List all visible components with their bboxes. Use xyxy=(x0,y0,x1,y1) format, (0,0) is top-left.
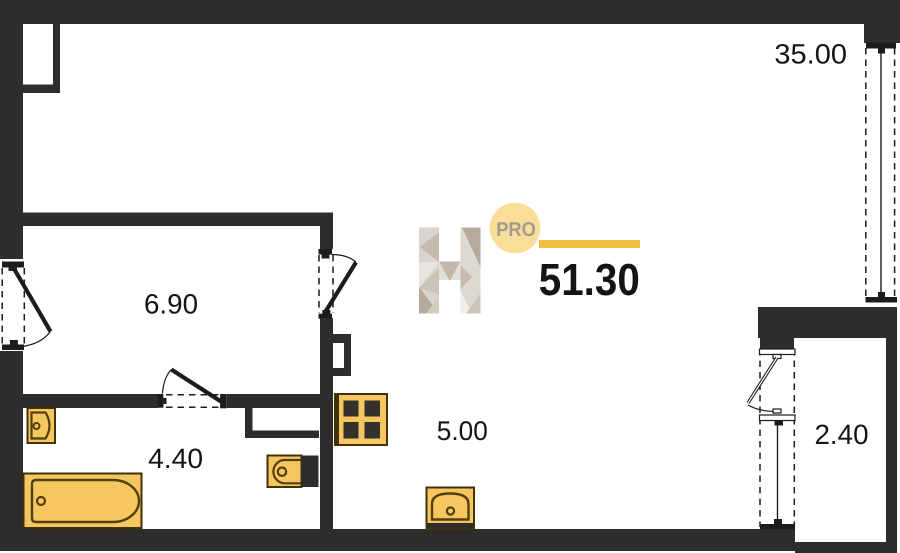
svg-text:PRO: PRO xyxy=(496,219,536,241)
svg-text:4.40: 4.40 xyxy=(148,443,203,474)
svg-text:6.90: 6.90 xyxy=(144,289,198,320)
svg-text:5.00: 5.00 xyxy=(437,416,488,446)
svg-text:35.00: 35.00 xyxy=(774,39,847,70)
svg-text:2.40: 2.40 xyxy=(815,419,869,450)
svg-text:51.30: 51.30 xyxy=(539,254,640,305)
